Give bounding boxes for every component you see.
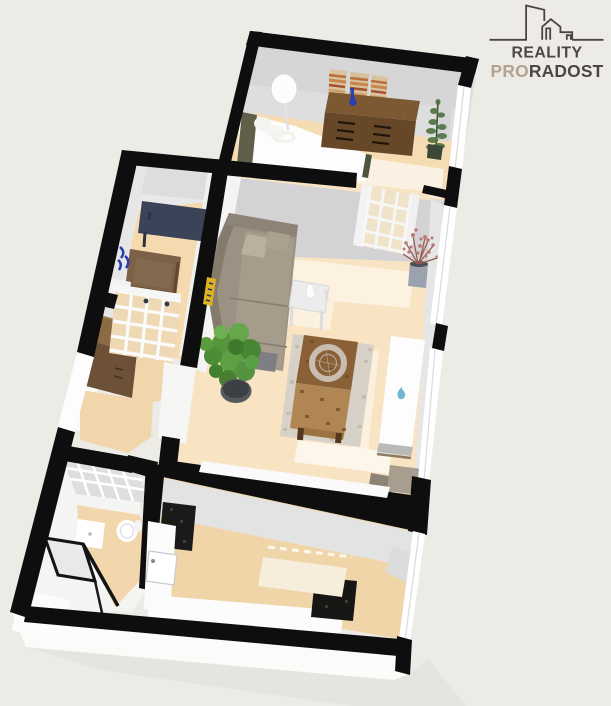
svg-text:REALITY: REALITY bbox=[511, 45, 582, 62]
svg-text:PRORADOST: PRORADOST bbox=[491, 61, 604, 81]
